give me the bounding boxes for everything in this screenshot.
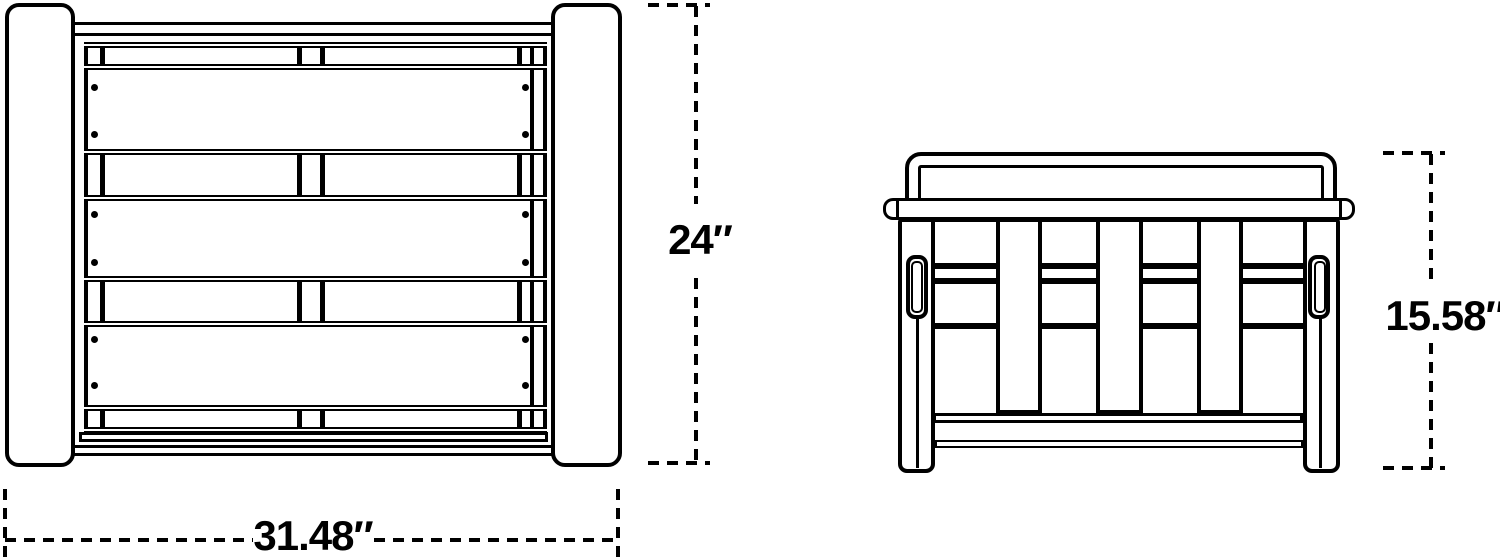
slat-row-rail: [84, 64, 547, 70]
vertical-slat: [1197, 218, 1243, 414]
dimension-line: [5, 538, 253, 542]
slat-divider: [297, 155, 302, 195]
screw-dot: [91, 382, 98, 389]
slat-divider: [320, 282, 325, 321]
screw-dot: [91, 131, 98, 138]
slat-row-rail: [84, 195, 547, 201]
dimension-diagram: 24″ 31.48″: [0, 0, 1500, 558]
slat-divider: [297, 48, 302, 64]
slat-row-rail: [84, 149, 547, 155]
side-height-dimension-label: 15.58″: [1379, 295, 1500, 337]
slat-bottom-rail: [933, 413, 1303, 423]
slat-divider: [320, 155, 325, 195]
screw-dot: [522, 211, 529, 218]
dimension-tick: [648, 461, 710, 465]
lower-stretcher: [935, 440, 1303, 448]
screw-dot: [91, 211, 98, 218]
right-leg-inner-line: [1319, 318, 1322, 468]
dimension-line: [374, 538, 618, 542]
dimension-tick: [1383, 151, 1445, 155]
slat-row-rail: [84, 276, 547, 282]
front-bottom-inner-rail: [79, 432, 548, 442]
frame-left-edge: [84, 42, 88, 433]
screw-dot: [522, 131, 529, 138]
dimension-line: [1429, 343, 1433, 468]
vertical-slat: [1096, 218, 1143, 414]
dimension-tick: [1383, 466, 1445, 470]
seat-bar-cap-line: [896, 200, 899, 218]
slat-divider: [517, 48, 522, 64]
slat-divider: [297, 282, 302, 321]
dimension-tick: [616, 489, 620, 557]
front-view-drawing: [5, 3, 623, 468]
right-post: [551, 3, 622, 467]
front-bottom-rail: [67, 445, 559, 456]
left-leg-inner-line: [916, 318, 919, 468]
side-view-drawing: [883, 152, 1356, 475]
slat-divider: [517, 411, 522, 427]
screw-dot: [91, 84, 98, 91]
slat-row-rail: [84, 42, 547, 48]
slat-divider: [297, 411, 302, 427]
screw-dot: [522, 336, 529, 343]
dimension-line: [694, 278, 698, 464]
frame-right-edge: [530, 42, 534, 433]
seat-bar-cap-line: [1339, 200, 1342, 218]
screw-dot: [522, 84, 529, 91]
dimension-line: [1429, 154, 1433, 283]
screw-dot: [522, 382, 529, 389]
slat-divider: [320, 48, 325, 64]
slat-divider: [517, 282, 522, 321]
slat-divider: [100, 411, 105, 427]
slat-divider: [320, 411, 325, 427]
width-dimension-label: 31.48″: [238, 515, 388, 557]
slat-row-rail: [84, 405, 547, 411]
frame-right-outer-edge: [543, 42, 547, 433]
dimension-line: [694, 6, 698, 204]
left-handle-inner-line: [911, 261, 923, 313]
slat-divider: [517, 155, 522, 195]
dimension-tick: [3, 489, 7, 557]
height-dimension-label: 24″: [650, 219, 750, 261]
seat-bar: [883, 198, 1355, 220]
slat-row-rail: [84, 321, 547, 327]
dimension-tick: [648, 3, 710, 7]
slat-divider: [100, 48, 105, 64]
right-handle-inner-line: [1314, 261, 1326, 313]
screw-dot: [91, 336, 98, 343]
left-post: [5, 3, 75, 467]
vertical-slat: [996, 218, 1042, 414]
slat-divider: [100, 155, 105, 195]
front-top-rail: [65, 22, 559, 36]
screw-dot: [91, 259, 98, 266]
slat-divider: [100, 282, 105, 321]
screw-dot: [522, 259, 529, 266]
